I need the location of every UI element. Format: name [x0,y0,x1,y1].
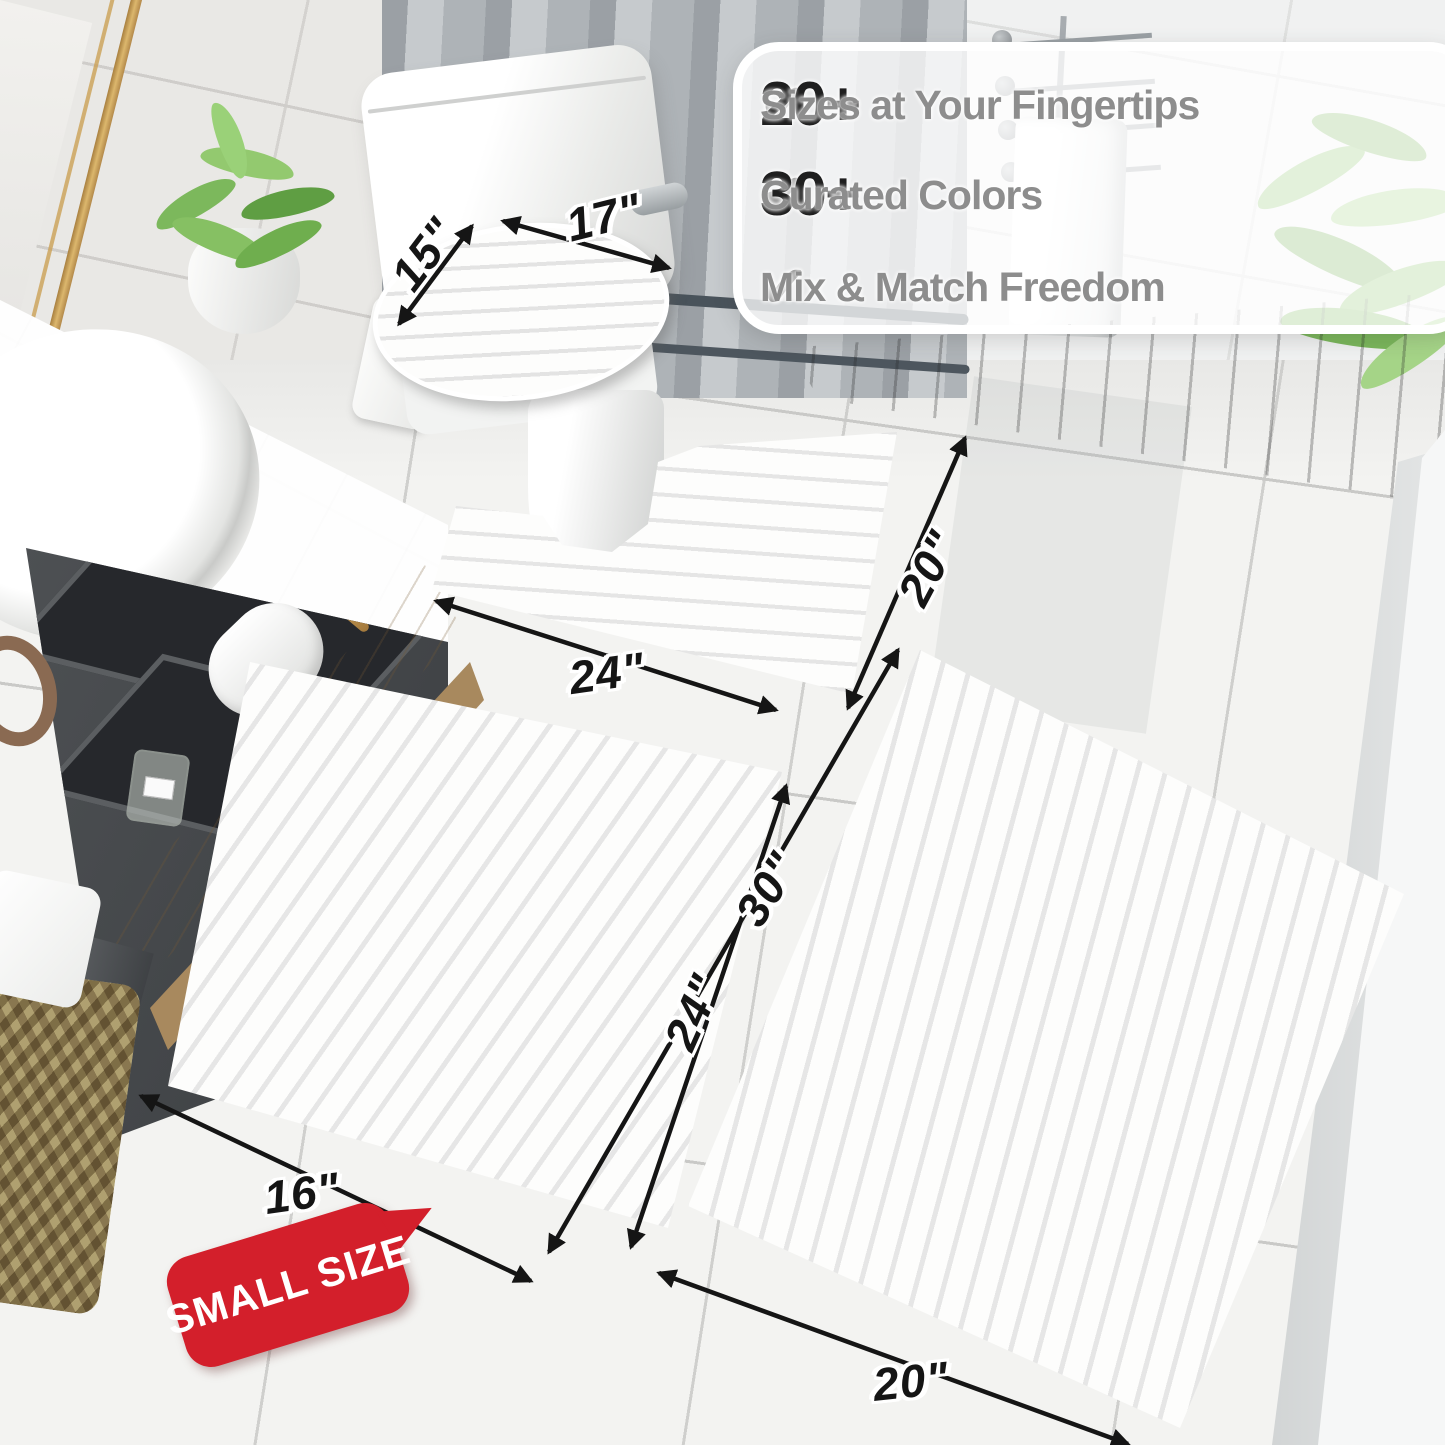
dim-label-large-rug-width: 20" [870,1350,951,1412]
feature-label: Mix & Match Freedom [760,267,1165,308]
bathroom-product-scene: 15" 17" 24" 20" 24" 30" 16" 20" ✔ 20+ Si… [0,0,1445,1445]
feature-label: Curated Colors [760,175,1042,216]
dim-label-contour-width: 24" [566,641,649,705]
feature-callout: ✔ 20+ Sizes at Your Fingertips ✔ 30+ Cur… [733,42,1445,334]
feature-label: Sizes at Your Fingertips [760,85,1199,126]
